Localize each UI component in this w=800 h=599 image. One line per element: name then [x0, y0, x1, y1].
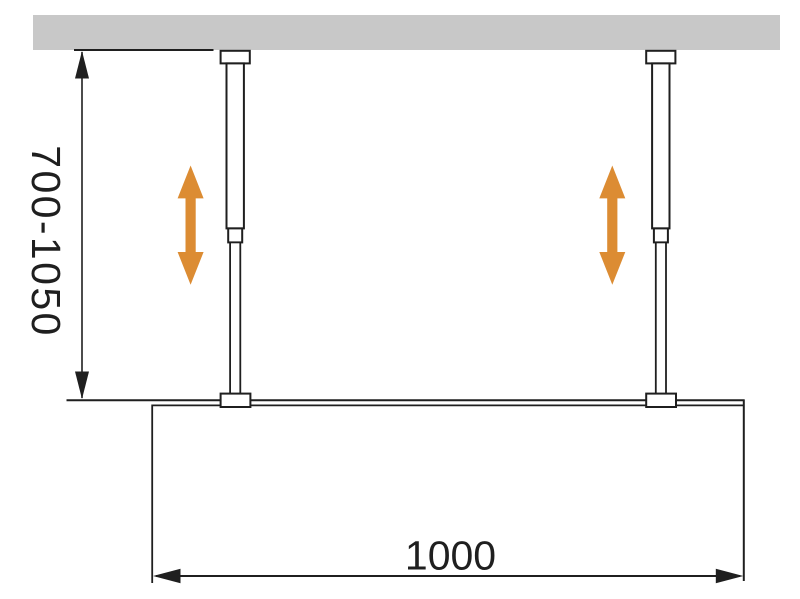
svg-text:700-1050: 700-1050 [23, 145, 69, 337]
svg-text:1000: 1000 [405, 533, 496, 579]
